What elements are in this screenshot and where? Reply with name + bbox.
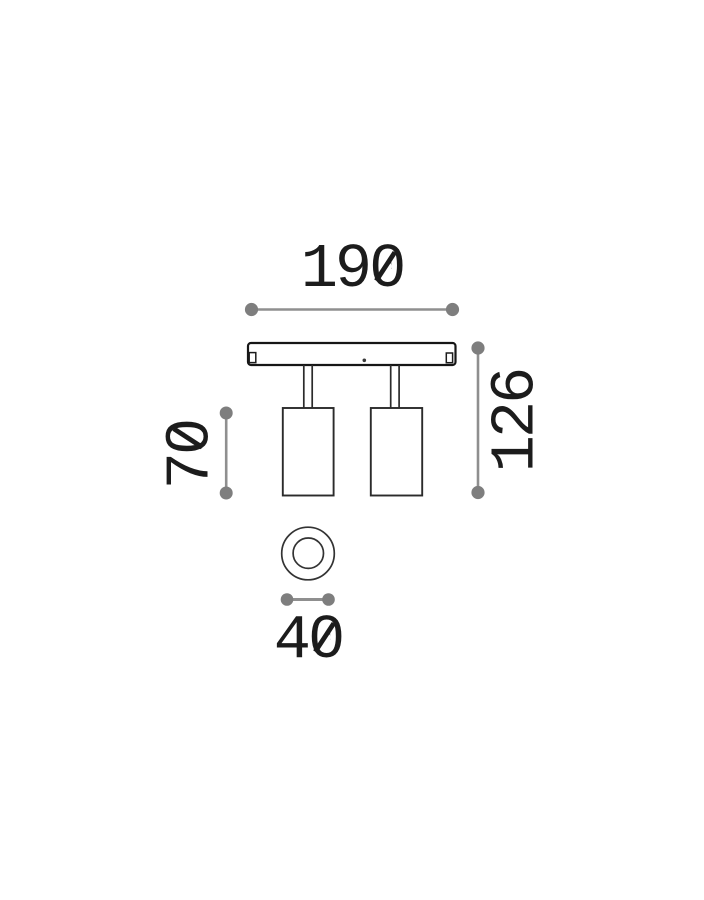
svg-text:70: 70 (156, 421, 227, 489)
svg-text:40: 40 (274, 605, 342, 676)
svg-text:126: 126 (481, 370, 552, 473)
